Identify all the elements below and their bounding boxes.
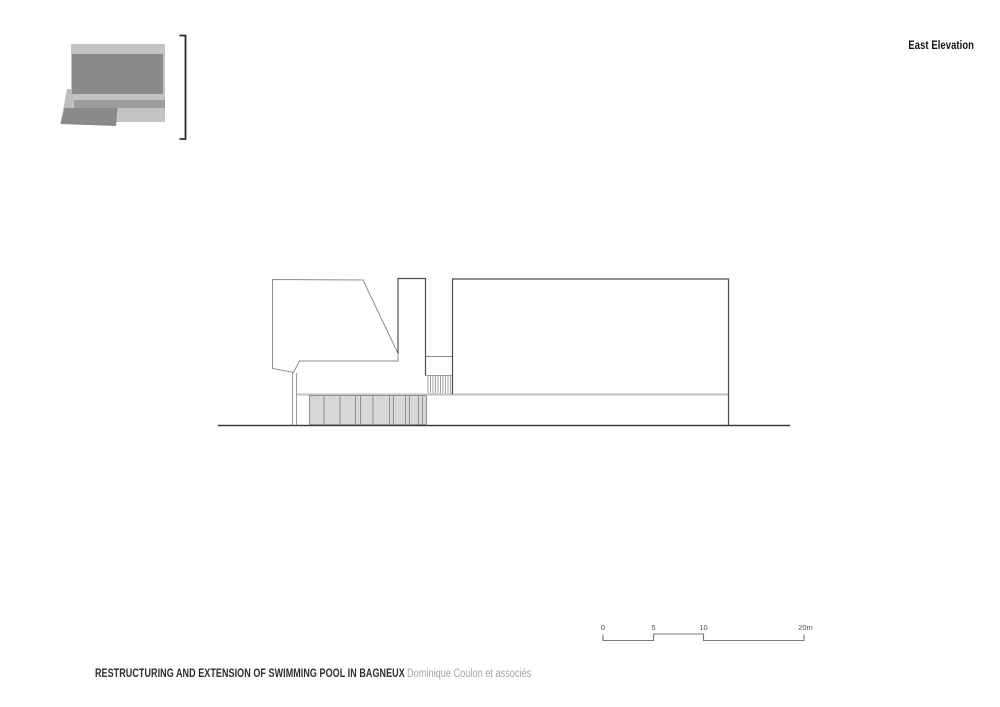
tower-outline xyxy=(398,279,426,376)
scale-tick-label: 5 xyxy=(651,623,655,632)
view-title: East Elevation xyxy=(908,40,974,52)
scale-tick-label: 10 xyxy=(699,623,707,632)
scale-tick-label: 0 xyxy=(601,623,605,632)
sheet: East Elevation 051020m RESTRUCTURING AND… xyxy=(0,0,1000,707)
left-wing-outline xyxy=(273,280,399,373)
project-title: RESTRUCTURING AND EXTENSION OF SWIMMING … xyxy=(95,668,405,680)
scale-bar-labels: 051020m xyxy=(0,623,1000,635)
scale-tick-label: 20m xyxy=(798,623,813,632)
elevation-drawing xyxy=(0,0,1000,707)
pilotis-panels xyxy=(310,396,427,425)
architect-credit: Dominique Coulon et associés xyxy=(407,668,531,680)
main-hall-outline xyxy=(453,279,729,426)
